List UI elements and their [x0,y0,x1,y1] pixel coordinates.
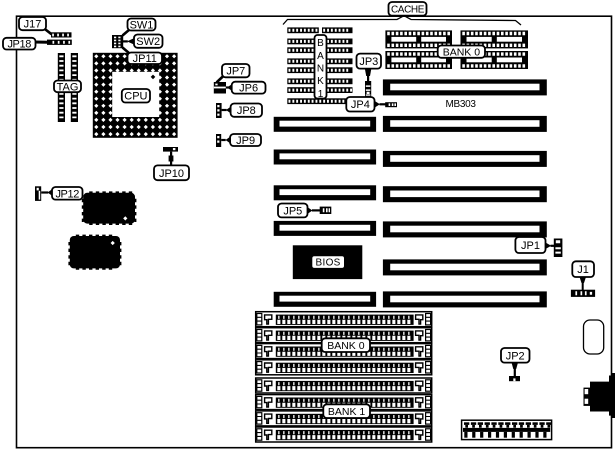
svg-text:SW1: SW1 [130,20,154,32]
svg-text:BANK 0: BANK 0 [327,340,365,352]
svg-text:JP7: JP7 [226,66,245,78]
svg-text:JP12: JP12 [55,188,79,200]
svg-text:JP9: JP9 [236,135,255,147]
svg-text:1: 1 [318,89,324,100]
svg-text:MB303: MB303 [446,99,477,110]
svg-text:JP18: JP18 [7,39,31,51]
svg-text:JP5: JP5 [283,205,302,217]
svg-text:J1: J1 [577,264,589,276]
svg-text:JP4: JP4 [351,99,370,111]
svg-text:K: K [317,76,324,87]
svg-text:N: N [317,64,324,75]
svg-text:CACHE: CACHE [391,4,425,15]
svg-text:JP10: JP10 [159,168,184,180]
svg-text:JP2: JP2 [506,350,525,362]
svg-text:SW2: SW2 [136,36,160,48]
svg-text:B: B [317,38,324,49]
svg-text:JP8: JP8 [237,105,256,117]
svg-text:A: A [317,51,324,62]
svg-text:CPU: CPU [124,91,147,103]
svg-text:JP6: JP6 [239,83,258,95]
svg-text:BANK 1: BANK 1 [328,406,366,418]
svg-text:TAG: TAG [57,81,79,93]
svg-text:JP3: JP3 [359,56,378,68]
svg-text:BIOS: BIOS [316,258,341,269]
svg-text:JP11: JP11 [133,53,157,65]
svg-text:BANK 0: BANK 0 [443,46,481,58]
svg-text:JP1: JP1 [521,240,540,252]
svg-text:J17: J17 [24,19,42,31]
